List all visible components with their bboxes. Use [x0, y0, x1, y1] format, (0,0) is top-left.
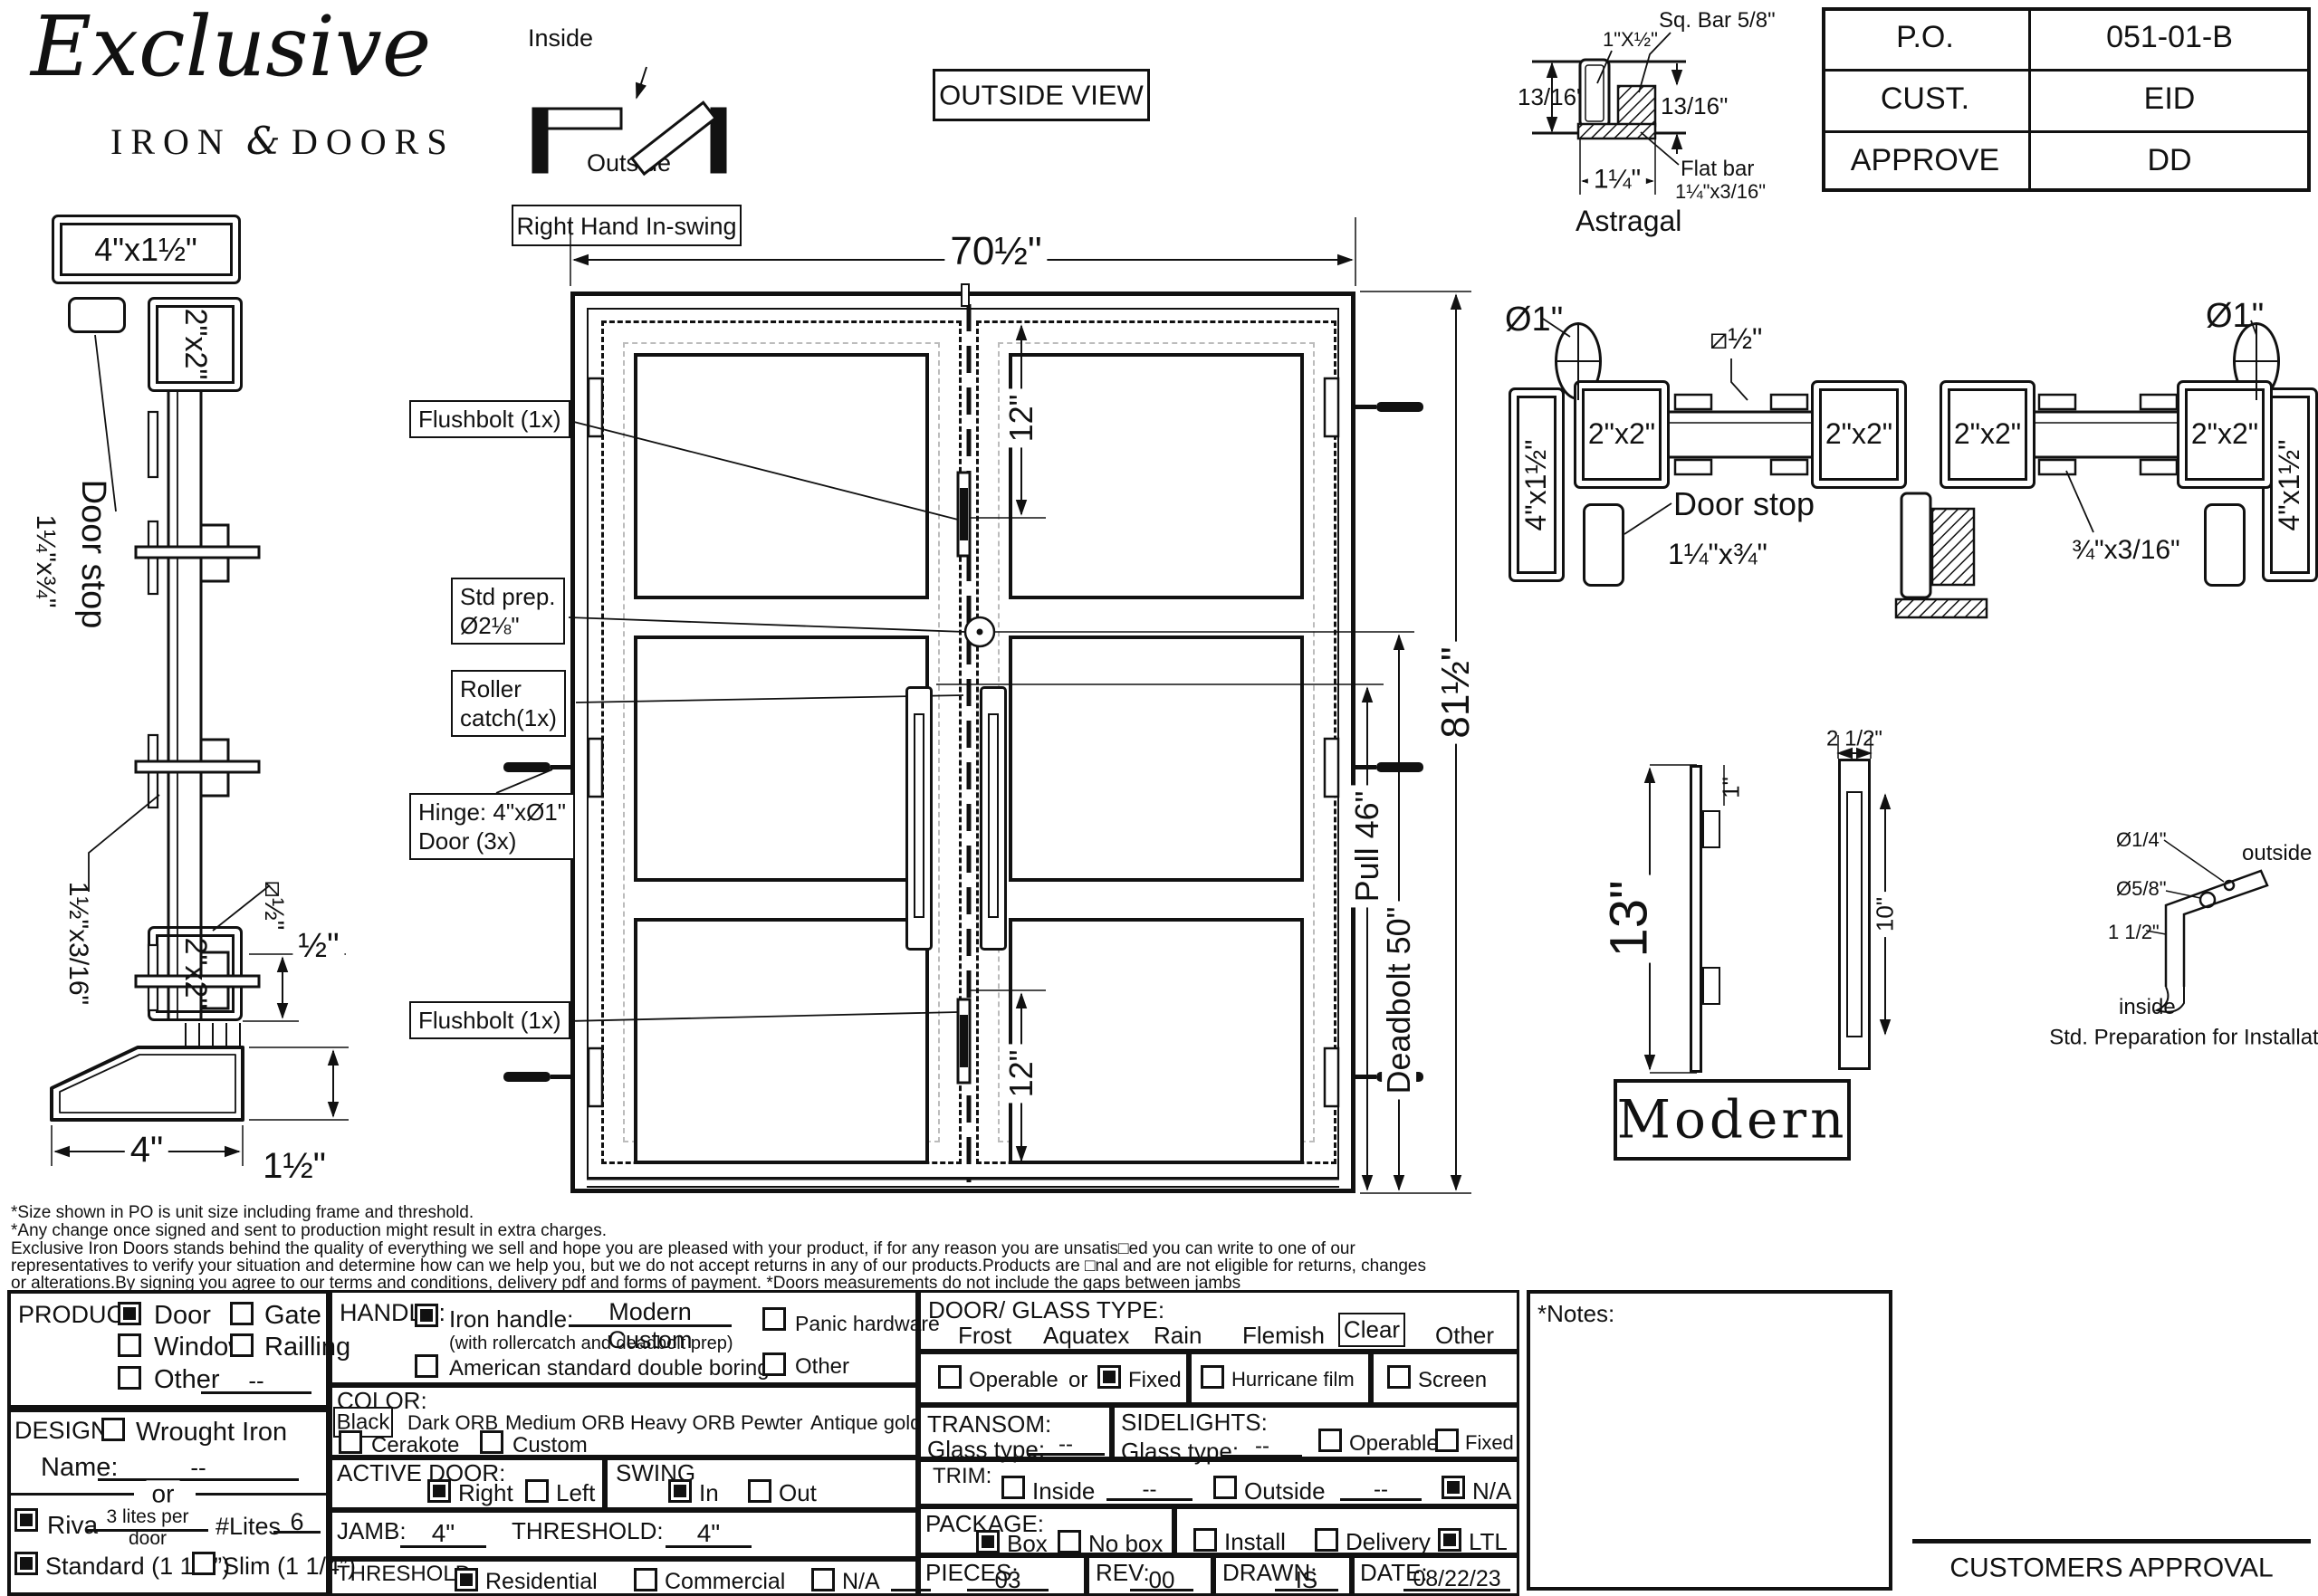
sidelights-fixed-checkbox[interactable] [1435, 1429, 1459, 1452]
product-window-checkbox[interactable] [118, 1333, 141, 1357]
logo-script: Exclusive [31, 4, 431, 91]
astragal-sqbar-label: Sq. Bar 5/8" [1659, 9, 1776, 32]
cust-label: CUST. [1881, 83, 1969, 116]
sidelights-glass-label: Glass type: [1121, 1439, 1239, 1464]
glass-panel [1009, 353, 1304, 599]
handle-iron-label: Iron handle: [449, 1307, 573, 1332]
plan-jamb-right-label: 4"x1½" [2275, 440, 2305, 531]
package-box-checkbox[interactable] [976, 1530, 1000, 1553]
glass-fixed-checkbox[interactable] [1097, 1365, 1121, 1389]
product-door-checkbox[interactable] [118, 1302, 141, 1325]
design-riva-checkbox[interactable] [14, 1508, 38, 1532]
package-install-label: Install [1224, 1530, 1286, 1554]
plan-stile-1-label: 2"x2" [1588, 419, 1655, 450]
disclaimer-line-1: *Size shown in PO is unit size including… [11, 1204, 474, 1222]
product-railing-label: Railling [264, 1333, 350, 1361]
pull-handle-right-slot [988, 713, 999, 918]
threshold-residential-label: Residential [485, 1570, 598, 1593]
design-slim-checkbox[interactable] [192, 1552, 216, 1575]
jamb-doorstop-profile [68, 297, 126, 333]
design-or-label: or [147, 1480, 180, 1506]
design-riva-value[interactable]: 3 lites per door [87, 1506, 208, 1532]
handle-height-dim: 13" [1603, 874, 1658, 962]
sidelights-title: SIDELIGHTS: [1121, 1410, 1268, 1435]
notes-box[interactable] [1527, 1290, 1892, 1591]
design-name-value[interactable]: -- [98, 1454, 299, 1481]
or-divider-left [7, 1493, 134, 1496]
po-value: 051-01-B [2106, 22, 2233, 54]
plan-doorstop-label-1: Door stop [1673, 487, 1815, 521]
po-label: P.O. [1896, 22, 1954, 54]
roller-catch-callout: Roller catch(1x) [451, 670, 566, 737]
plan-square-label: ⧄½" [1710, 324, 1762, 355]
product-gate-label: Gate [264, 1302, 321, 1329]
glass-selected-label: Clear [1344, 1317, 1400, 1342]
rev-value[interactable]: 00 [1130, 1566, 1193, 1591]
threshold-commercial-label: Commercial [665, 1570, 785, 1593]
handle-american-label: American standard double boring [449, 1357, 770, 1380]
color-cerakote-label: Cerakote [371, 1434, 459, 1457]
jamb-value[interactable]: 4" [400, 1519, 486, 1548]
swing-in-label: In [699, 1481, 719, 1505]
trim-outside-label: Outside [1244, 1479, 1326, 1504]
threshold-tube-label: 2"x2" [178, 938, 211, 1009]
glass-title: DOOR/ GLASS TYPE: [928, 1298, 1164, 1323]
swing-in-checkbox[interactable] [668, 1479, 692, 1503]
glass-panel [634, 636, 929, 882]
astragal-flatbar-label-1: Flat bar [1681, 158, 1754, 180]
transom-glass-value[interactable]: -- [1027, 1432, 1105, 1456]
package-nobox-label: No box [1088, 1532, 1163, 1556]
trim-outside-value[interactable]: -- [1340, 1477, 1422, 1501]
handle-top-dim: 1" [1719, 777, 1743, 798]
glass-panel [1009, 636, 1304, 882]
or-divider-right [196, 1493, 330, 1496]
trim-inside-checkbox[interactable] [1001, 1476, 1025, 1499]
handle-front-slot [1846, 791, 1863, 1037]
astragal-dim-left: 13/16" [1518, 85, 1585, 110]
threshold-commercial-checkbox[interactable] [634, 1568, 657, 1591]
color-custom-label: Custom [512, 1434, 588, 1457]
hinge-label-2: Door (3x) [418, 827, 566, 855]
package-ltl-checkbox[interactable] [1438, 1528, 1461, 1552]
color-selected-label: Black [337, 1410, 390, 1433]
threshold-height-dim: 1½" [257, 1147, 331, 1185]
threshold-width-dim: 4" [125, 1131, 168, 1169]
roller-catch-label-1: Roller [460, 674, 557, 703]
jamb-tube-label: 2"x2" [178, 309, 211, 380]
shop-drawing-page: Exclusive IRON & DOORS Inside Outside Ri… [0, 0, 2318, 1596]
design-lites-label: #Lites [216, 1514, 281, 1539]
glass-screen-label: Screen [1418, 1369, 1487, 1391]
jamb-threshold-title: THRESHOLD: [512, 1519, 664, 1543]
package-delivery-label: Delivery [1346, 1530, 1431, 1554]
glass-fixed-label: Fixed [1128, 1369, 1182, 1391]
design-standard-checkbox[interactable] [14, 1552, 38, 1575]
plan-jamb-left-label: 4"x1½" [1521, 440, 1552, 531]
glass-opt-frost[interactable]: Frost [958, 1324, 1011, 1348]
product-other-checkbox[interactable] [118, 1366, 141, 1390]
trim-inside-value[interactable]: -- [1106, 1477, 1193, 1501]
logo-doors: DOORS [292, 123, 455, 161]
glass-panel [1009, 918, 1304, 1164]
threshold-na-label: N/A [842, 1570, 880, 1593]
package-nobox-checkbox[interactable] [1058, 1530, 1081, 1553]
drawn-value[interactable]: IS [1275, 1566, 1338, 1591]
std-prep-callout: Std prep. Ø2⅛" [451, 578, 565, 645]
trim-na-label: N/A [1472, 1479, 1511, 1504]
prep-detail-linework [2146, 840, 2267, 1012]
astragal-tube-label: 1"X½" [1603, 29, 1658, 50]
handle-width-dim: 2 1/2" [1826, 727, 1882, 750]
handle-panic-checkbox[interactable] [762, 1307, 786, 1331]
astragal-dim-right: 13/16" [1661, 94, 1728, 119]
flushbolt-bottom-label: Flushbolt (1x) [418, 1006, 561, 1035]
prep-hole-small-label: Ø1/4" [2116, 829, 2167, 850]
jamb-section-linework [52, 335, 349, 1166]
style-label: Modern [1617, 1093, 1848, 1148]
color-opt-medium-orb[interactable]: Medium ORB [505, 1412, 625, 1433]
std-prep-label-2: Ø2⅛" [460, 611, 556, 640]
threshold-na-checkbox[interactable] [811, 1568, 835, 1591]
package-delivery-checkbox[interactable] [1315, 1528, 1338, 1552]
approve-value: DD [2147, 145, 2191, 177]
package-ltl-label: LTL [1469, 1530, 1508, 1554]
logo-ampersand-icon: & [246, 121, 280, 161]
glass-hurricane-checkbox[interactable] [1201, 1365, 1224, 1389]
jamb-square-label: ⧄½" [259, 881, 288, 931]
prep-outside-label: outside [2242, 842, 2312, 865]
deadbolt-height-dim: Deadbolt 50" [1382, 902, 1416, 1100]
handle-other-checkbox[interactable] [762, 1352, 786, 1376]
trim-na-checkbox[interactable] [1442, 1476, 1465, 1499]
jamb-doorstop-label-2: 1¼"x¾" [31, 514, 60, 607]
swing-outside-label: Outside [587, 150, 671, 176]
design-lites-value[interactable]: 6 [273, 1508, 321, 1534]
flushbolt-top-callout: Flushbolt (1x) [409, 400, 570, 438]
flushbolt-bottom-callout: Flushbolt (1x) [409, 1001, 570, 1039]
plan-doorstop-label-2: 1¼"x¾" [1668, 540, 1767, 570]
notes-label: *Notes: [1537, 1302, 1614, 1326]
product-other-value[interactable]: -- [201, 1367, 311, 1394]
view-label: OUTSIDE VIEW [939, 81, 1144, 111]
jamb-flat-label: 1½"x3/16" [63, 882, 92, 1005]
handle-standoff-top [1702, 810, 1720, 848]
handle-american-checkbox[interactable] [415, 1354, 438, 1378]
color-opt-pewter[interactable]: Pewter [741, 1412, 802, 1433]
active-right-checkbox[interactable] [427, 1479, 451, 1503]
glass-opt-rain[interactable]: Rain [1154, 1324, 1202, 1348]
package-box-label: Box [1007, 1532, 1048, 1556]
top-lite-dim: 12" [1004, 389, 1039, 448]
handle-standoff-bottom [1702, 967, 1720, 1005]
plan-doorstop-right [2204, 503, 2246, 587]
handle-iron-value[interactable]: Modern Custom [569, 1298, 732, 1327]
astragal-caption: Astragal [1576, 206, 1681, 237]
handle-iron-note: (with rollercatch and deadbolt prep) [449, 1334, 733, 1353]
handing-label: Right Hand In-swing [516, 214, 736, 239]
flushbolt-top-label: Flushbolt (1x) [418, 405, 561, 434]
product-door-label: Door [154, 1302, 211, 1329]
disclaimer-line-3: Exclusive Iron Doors stands behind the q… [11, 1240, 1355, 1258]
design-wrought-checkbox[interactable] [101, 1418, 125, 1441]
glass-panel [634, 353, 929, 599]
glass-opt-aquatex[interactable]: Aquatex [1043, 1324, 1129, 1348]
sidelights-operable-label: Operable [1349, 1432, 1439, 1455]
swing-inside-label: Inside [528, 25, 593, 51]
disclaimer-line-2: *Any change once signed and sent to prod… [11, 1222, 607, 1240]
date-value[interactable]: 08/22/23 [1403, 1566, 1510, 1591]
sidelights-fixed-label: Fixed [1465, 1432, 1514, 1453]
handle-slot-dim: 10" [1873, 892, 1897, 937]
plan-hinge-dia-left: Ø1" [1505, 302, 1563, 339]
astragal-flatbar-label-2: 1¼"x3/16" [1675, 181, 1766, 202]
roller-catch-label-2: catch(1x) [460, 703, 557, 732]
std-prep-label-1: Std prep. [460, 582, 556, 611]
customers-approval-label: CUSTOMERS APPROVAL [1949, 1553, 2273, 1582]
cust-value: EID [2144, 83, 2196, 116]
product-railing-checkbox[interactable] [230, 1333, 254, 1357]
prep-offset-label: 1 1/2" [2108, 922, 2160, 942]
elevation-width-dim: 70½" [944, 231, 1047, 272]
jamb-title: JAMB: [337, 1519, 407, 1543]
prep-caption: Std. Preparation for Installation [2049, 1026, 2318, 1048]
approve-label: APPROVE [1851, 145, 1999, 177]
handle-other-label: Other [795, 1355, 849, 1378]
active-left-checkbox[interactable] [525, 1479, 549, 1503]
active-left-label: Left [556, 1481, 595, 1505]
astragal-width-dim: 1¼" [1588, 165, 1646, 194]
threshold-lip-dim: ½" [292, 929, 344, 965]
logo-iron: IRON [110, 123, 232, 161]
product-gate-checkbox[interactable] [230, 1302, 254, 1325]
hinge-label-1: Hinge: 4"xØ1" [418, 798, 566, 827]
sidelights-glass-value[interactable]: -- [1222, 1434, 1302, 1457]
glass-opt-other[interactable]: Other [1435, 1324, 1494, 1348]
handle-panic-label: Panic hardware [795, 1313, 940, 1334]
prep-hole-large-label: Ø5/8" [2116, 878, 2167, 899]
sidelights-operable-checkbox[interactable] [1318, 1429, 1342, 1452]
swing-out-label: Out [779, 1481, 817, 1505]
package-install-checkbox[interactable] [1193, 1528, 1217, 1552]
elevation-height-dim: 81½" [1435, 641, 1477, 743]
trim-outside-checkbox[interactable] [1213, 1476, 1237, 1499]
plan-doorstop-left [1583, 503, 1624, 587]
handle-iron-checkbox[interactable] [415, 1304, 438, 1327]
active-right-label: Right [458, 1481, 513, 1505]
glass-screen-checkbox[interactable] [1387, 1365, 1411, 1389]
glass-operable-label: Operable [969, 1369, 1058, 1391]
color-opt-heavy-orb[interactable]: Heavy ORB [630, 1412, 735, 1433]
color-custom-checkbox[interactable] [480, 1430, 503, 1454]
trim-inside-label: Inside [1032, 1479, 1095, 1504]
color-opt-antique-gold[interactable]: Antique gold [810, 1412, 921, 1433]
plan-stile-2-label: 2"x2" [1825, 419, 1892, 450]
handle-side-bar [1690, 765, 1702, 1073]
pull-height-dim: Pull 46" [1350, 786, 1384, 908]
jamb-threshold-value[interactable]: 4" [666, 1519, 752, 1548]
jamb-doorstop-label-1: Door stop [74, 480, 110, 629]
plan-flat-label: ¾"x3/16" [2072, 536, 2180, 565]
plan-stile-4-label: 2"x2" [2191, 419, 2258, 450]
prep-inside-label: inside [2119, 996, 2176, 1018]
trim-title: TRIM: [933, 1465, 991, 1487]
signature-line[interactable] [1912, 1539, 2311, 1543]
pieces-value[interactable]: 03 [967, 1566, 1049, 1591]
plan-stile-3-label: 2"x2" [1954, 419, 2021, 450]
bottom-lite-dim: 12" [1004, 1045, 1039, 1104]
glass-operable-checkbox[interactable] [938, 1365, 962, 1389]
hinge-callout: Hinge: 4"xØ1" Door (3x) [409, 793, 575, 860]
threshold-residential-checkbox[interactable] [455, 1568, 478, 1591]
glass-hurricane-label: Hurricane film [1231, 1369, 1355, 1390]
glass-panel [634, 918, 929, 1164]
glass-or-label: or [1068, 1369, 1087, 1391]
glass-opt-flemish[interactable]: Flemish [1242, 1324, 1325, 1348]
design-title: DESIGN: [14, 1418, 115, 1443]
swing-out-checkbox[interactable] [748, 1479, 771, 1503]
design-slim-label: Slim (1 1/4”) [223, 1553, 356, 1579]
pull-handle-left-slot [914, 713, 924, 918]
jamb-head-label: 4"x1½" [94, 233, 197, 267]
disclaimer-line-4: representatives to verify your situation… [11, 1257, 1426, 1276]
design-wrought-label: Wrought Iron [136, 1419, 287, 1446]
